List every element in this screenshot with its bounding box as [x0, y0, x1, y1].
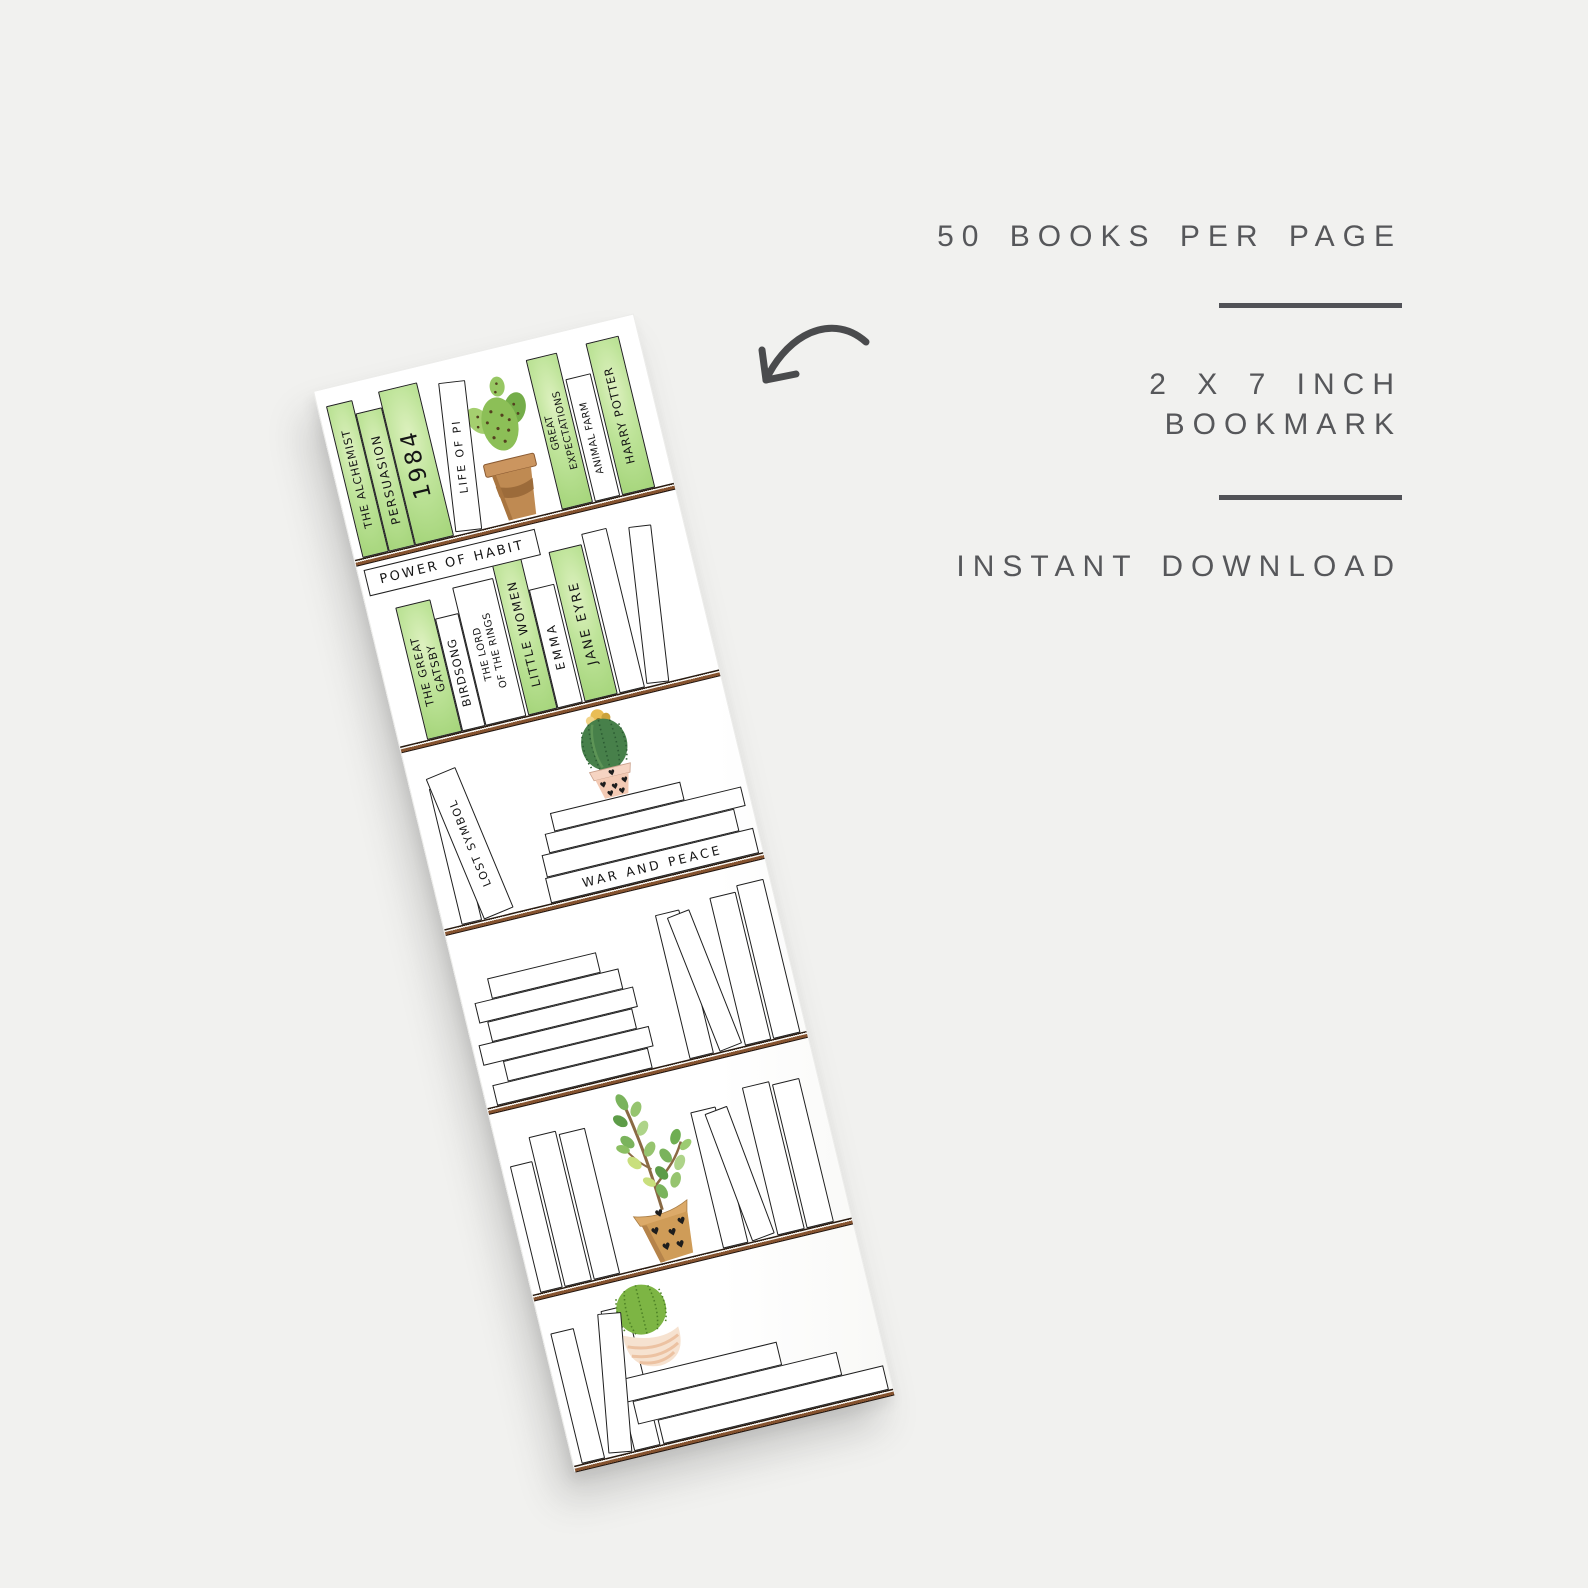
divider	[1219, 495, 1402, 500]
divider	[1219, 303, 1402, 308]
spacer	[937, 313, 1402, 365]
books-per-page-text: 50 BOOKS PER PAGE	[937, 217, 1402, 257]
instant-download-text: INSTANT DOWNLOAD	[937, 547, 1402, 587]
curved-arrow-icon	[742, 322, 882, 410]
product-image-canvas: 50 BOOKS PER PAGE 2 X 7 INCH BOOKMARK IN…	[0, 0, 1588, 1588]
empty-book-spine	[550, 1328, 605, 1464]
bookmark: THE ALCHEMIST PERSUASION 1984 LIFE OF PI	[313, 313, 895, 1471]
size-text-line-1: 2 X 7 INCH	[937, 365, 1402, 405]
shelf-4-right-books	[653, 879, 801, 1059]
spacer	[937, 505, 1402, 547]
size-text-line-2: BOOKMARK	[937, 405, 1402, 445]
info-panel: 50 BOOKS PER PAGE 2 X 7 INCH BOOKMARK IN…	[937, 217, 1402, 587]
